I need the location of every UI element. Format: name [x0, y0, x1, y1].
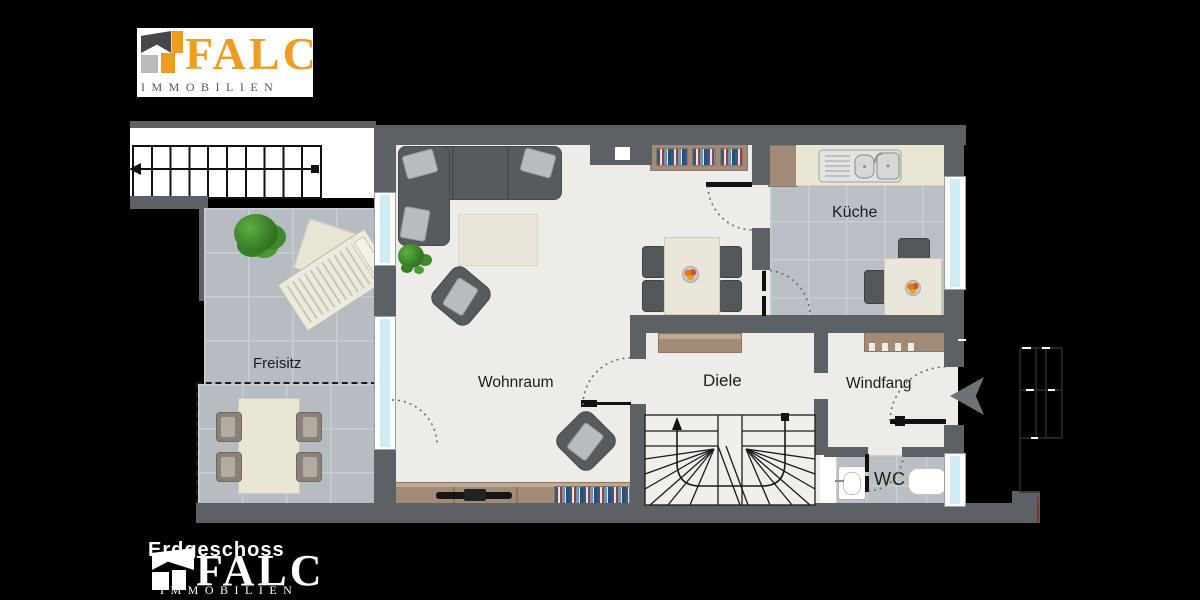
plan-lines-overlay	[0, 0, 1200, 600]
terrace-door-arc	[392, 400, 437, 445]
brand-subtitle-white: IMMOBILIEN	[160, 583, 298, 598]
entrance-door-arc	[890, 367, 945, 421]
wohnraum-diele-door-arc	[583, 358, 630, 405]
interior-staircase	[645, 415, 815, 505]
exterior-steps-highlights	[958, 339, 1055, 439]
wc-door-arc	[868, 455, 903, 491]
dining-kitchen-door-arc	[708, 186, 752, 230]
stair-arrow-icon	[129, 163, 141, 175]
floor-title: Erdgeschoss	[148, 539, 285, 562]
interior-stair-start-marker	[781, 413, 789, 421]
floor-plan-image: FALC IMMOBILIEN Freisitz Wohnraum	[0, 0, 1200, 600]
stair-start-marker	[311, 165, 319, 173]
exterior-entrance-steps	[1020, 348, 1062, 492]
kitchen-door-arc	[764, 270, 810, 315]
brand-logo-bottom: FALC IMMOBILIEN Erdgeschoss	[146, 538, 346, 600]
